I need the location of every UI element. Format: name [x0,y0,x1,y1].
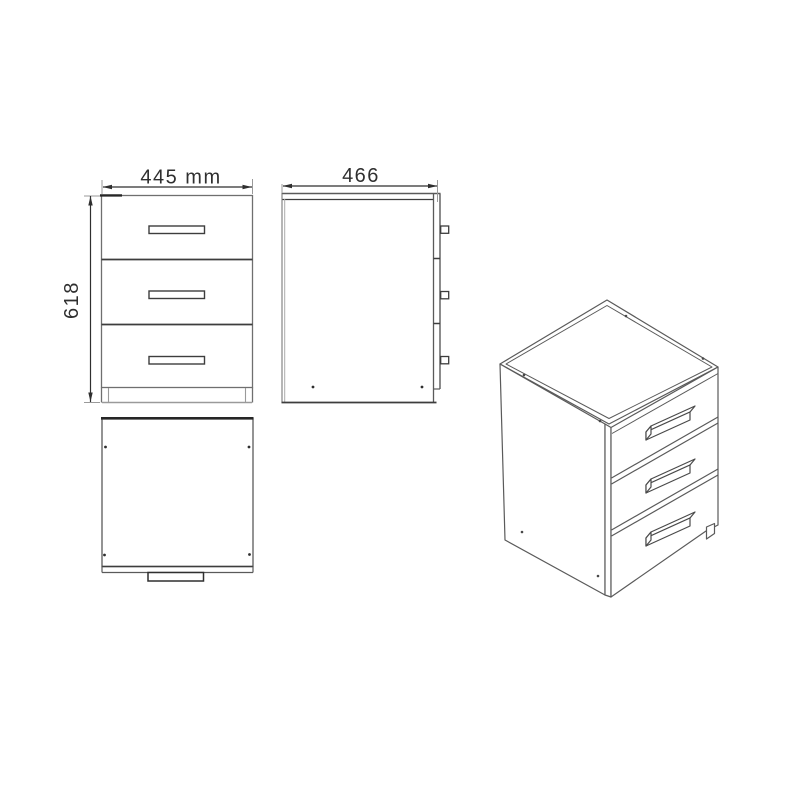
drawer-handle [148,573,204,582]
drawer-handle [441,357,449,364]
front-view [100,195,253,402]
arrowhead-bottom [88,393,92,403]
arrowhead-right [243,185,253,189]
drawing-sheet: 445 mm 618 466 [0,0,800,800]
side-view [282,194,449,404]
drawer-handle [441,292,449,299]
drawer-handle [149,357,205,365]
side-panel-edge [605,424,611,597]
drawer-handle [149,226,205,234]
arrowhead-right [428,184,438,188]
plinth-base [102,388,253,403]
arrowhead-left [283,184,293,188]
depth-dimension: 466 [282,165,438,202]
technical-drawing: 445 mm 618 466 [0,0,800,800]
drawer-handle [149,291,205,299]
perspective-view [500,300,718,597]
front-panel-strip [102,567,253,573]
screw-dot [248,446,251,449]
arrowhead-top [88,196,92,206]
depth-label: 466 [342,165,380,187]
screw-dot [103,554,106,557]
width-label: 445 mm [140,167,221,189]
screw-dot [312,386,315,389]
drawer-handle [441,226,449,233]
screw-dot [248,553,251,556]
height-label: 618 [61,281,83,319]
top-view [101,418,254,581]
screw-dot [421,386,424,389]
height-dimension: 618 [61,196,100,403]
arrowhead-left [103,185,113,189]
cabinet-foot [707,524,715,540]
width-dimension: 445 mm [102,167,253,195]
screw-dot [104,446,107,449]
